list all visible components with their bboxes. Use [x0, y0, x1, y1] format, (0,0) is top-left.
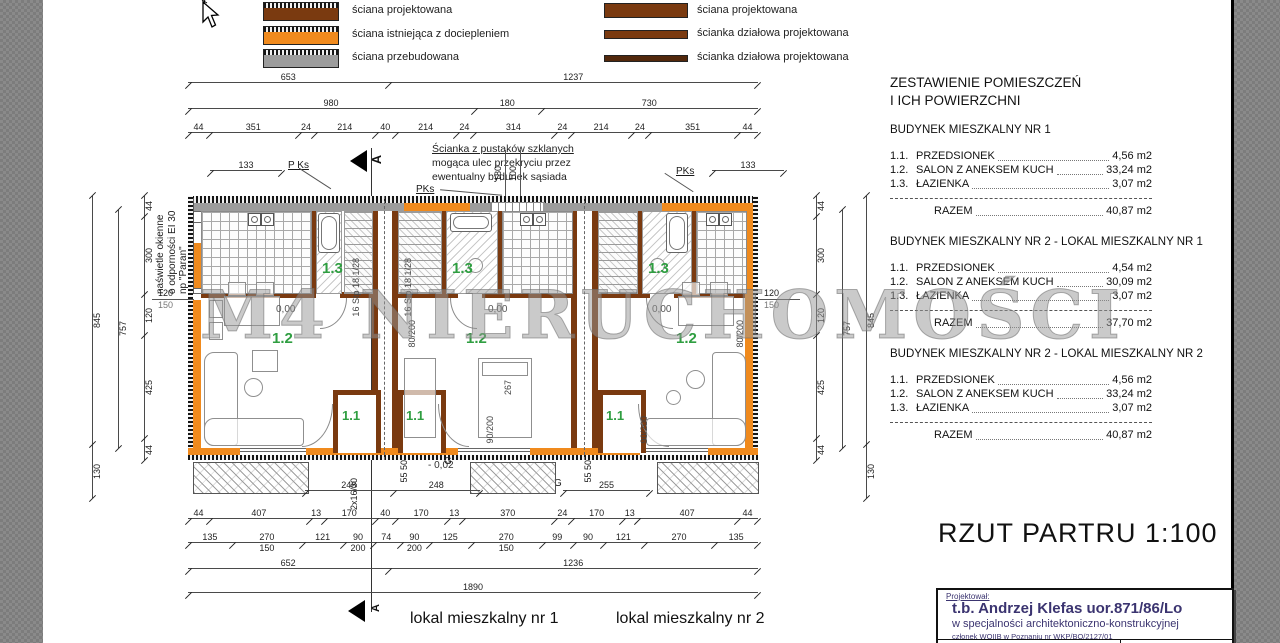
- title-block: Projektował: t.b. Andrzej Klefas uor.871…: [936, 588, 1234, 643]
- dim-chain-left-mid: 757: [118, 210, 131, 448]
- pks-label-left: P Ks: [288, 160, 309, 172]
- section-marker-top-icon: [350, 150, 367, 172]
- summary-total-row: RAZEM 40,87 m2: [890, 428, 1152, 442]
- dim-150-left: 150: [158, 301, 173, 311]
- naswietle-line-2: o odporności EI 30: [167, 198, 179, 294]
- summary-row: 1.1. PRZEDSIONEK 4,56 m2: [890, 373, 1152, 387]
- window-left-top: [193, 211, 201, 245]
- legend-swatch-partition-projected: [604, 30, 688, 39]
- dim-180: 180: [494, 166, 504, 181]
- dim-chain-left-outer: 845130: [92, 196, 105, 498]
- door-label-90-1: 90/200: [486, 416, 496, 444]
- naswietle-note: naświetle okienne o odporności EI 30 np …: [155, 198, 190, 294]
- summary-row: 1.3. ŁAZIENKA 3,07 m2: [890, 401, 1152, 415]
- legend-label: ściana istniejąca z dociepleniem: [352, 28, 509, 40]
- dim-100: 100: [509, 166, 519, 181]
- kitchen-sink-u3b: [719, 213, 732, 226]
- gas-marker-1: G: [444, 456, 452, 468]
- room-label-u1-11: 1.1: [342, 408, 360, 423]
- door-label-90-2: 90/200: [640, 416, 650, 444]
- titleblock-cell-divider: [938, 639, 1232, 640]
- dim-chain-bottom-1: 44407131704017013370241701340744: [188, 506, 758, 519]
- bathtub-u3: [666, 213, 688, 253]
- kitchen-sink-u1b: [261, 213, 274, 226]
- wall-top-orange-1: [404, 203, 470, 211]
- pks-label-mid: PKs: [416, 184, 434, 196]
- leader-dots: [1057, 174, 1104, 175]
- terrace-unit3: [657, 462, 759, 494]
- dim-120-left: 120: [158, 289, 173, 299]
- dim-chain-top-1: 6531237: [188, 70, 758, 83]
- room-label-u1-13: 1.3: [322, 260, 343, 277]
- summary-separator: [890, 198, 1152, 199]
- wall-bottom-hatch: [188, 455, 758, 460]
- dim-chain-left-inner: 4430012042544: [144, 196, 157, 460]
- summary-title: ZESTAWIENIE POMIESZCZEŃ I ICH POWIERZCHN…: [890, 74, 1081, 109]
- ext-line-100: [520, 150, 521, 196]
- pks-label-right: PKs: [676, 166, 694, 178]
- bathtub-u2: [450, 213, 492, 232]
- room-label-u2-13: 1.3: [452, 260, 473, 277]
- drawing-title: RZUT PARTRU 1:100: [938, 518, 1218, 549]
- dim-chain-bottom-4: 1890: [188, 580, 758, 593]
- kitchen-sink-u1: [248, 213, 261, 226]
- summary-row: 1.1. PRZEDSIONEK 4,54 m2: [890, 261, 1152, 275]
- legend-swatch-wall-rebuilt: [263, 49, 339, 68]
- dim-133-right: 133: [712, 158, 784, 171]
- terrace-unit2: [470, 462, 556, 494]
- summary-heading: BUDYNEK MIESZKALNY NR 2 - LOKAL MIESZKAL…: [890, 236, 1152, 248]
- section-letter-bottom: A: [370, 604, 382, 612]
- kitchen-sink-u3: [706, 213, 719, 226]
- kitchen-sink-u2: [520, 213, 533, 226]
- section-letter-top: A: [369, 155, 384, 164]
- legend-label: ścianka działowa projektowana: [697, 51, 849, 63]
- legend-swatch-wall-existing-insulated: [263, 26, 339, 45]
- dim-chain-bottom-3: 6521236: [188, 556, 758, 569]
- side-table-u3b: [666, 390, 681, 405]
- mouse-cursor-icon: [199, 0, 221, 30]
- wall-top-gray-1: [188, 203, 404, 211]
- leader-dots: [998, 384, 1109, 385]
- screenshot-canvas: ściana projektowana ściana istniejąca z …: [0, 0, 1280, 643]
- wall-top-gray-2: [470, 203, 490, 211]
- summary-total-row: RAZEM 40,87 m2: [890, 204, 1152, 218]
- dim-chain-mid-b: 255: [563, 478, 650, 491]
- summary-title-line1: ZESTAWIENIE POMIESZCZEŃ: [890, 74, 1081, 92]
- summary-section-3: BUDYNEK MIESZKALNY NR 2 - LOKAL MIESZKAL…: [890, 348, 1152, 442]
- note-line-1: Ścianka z pustaków szklanych: [432, 142, 574, 156]
- legend-swatch-wall-projected: [263, 2, 339, 21]
- leader-dots: [972, 188, 1109, 189]
- dim-267: 267: [504, 380, 514, 395]
- pks-leader-left: [299, 168, 331, 190]
- terrace-unit1: [193, 462, 309, 494]
- wall-top-gray-3: [543, 203, 662, 211]
- ext-line-180: [505, 150, 506, 196]
- side-table-u3: [686, 370, 705, 389]
- side-table-u1: [244, 378, 263, 397]
- leader-dots: [998, 160, 1109, 161]
- pks-leader-mid: [440, 189, 502, 195]
- dim-133-left: 133: [210, 158, 282, 171]
- bed-u2-pillow: [482, 362, 528, 376]
- wall-top-orange-2: [662, 203, 758, 211]
- right-transparency-strip: [1234, 0, 1280, 643]
- door-arc-entry1: [302, 404, 333, 447]
- leader-dots: [998, 272, 1109, 273]
- dim-chain-top-3: 44351242144021424314242142435144: [188, 120, 758, 133]
- section-marker-bottom-icon: [348, 600, 365, 622]
- leader-dots: [976, 439, 1104, 440]
- leader-dots: [1057, 398, 1104, 399]
- summary-heading: BUDYNEK MIESZKALNY NR 1: [890, 124, 1152, 136]
- room-label-u3-11: 1.1: [606, 408, 624, 423]
- summary-section-1: BUDYNEK MIESZKALNY NR 1 1.1. PRZEDSIONEK…: [890, 124, 1152, 218]
- footer-lokal-1: lokal mieszkalny nr 1: [410, 610, 559, 628]
- room-label-u3-13: 1.3: [648, 260, 669, 277]
- legend-swatch-partition-projected-2: [604, 55, 688, 62]
- summary-row: 1.1. PRZEDSIONEK 4,56 m2: [890, 149, 1152, 163]
- naswietle-line-3: np "Paran": [178, 198, 190, 294]
- leader-dots: [976, 215, 1104, 216]
- room-label-u2-11: 1.1: [406, 408, 424, 423]
- legend-label: ściana przebudowana: [352, 51, 459, 63]
- left-transparency-strip: [0, 0, 43, 643]
- naswietle-bracket: [193, 198, 194, 294]
- summary-row: 1.3. ŁAZIENKA 3,07 m2: [890, 177, 1152, 191]
- watermark-text: M4 NIERUCHOMOŚCI: [200, 276, 1126, 354]
- titleblock-vertical-divider: [1120, 639, 1121, 643]
- titleblock-designer-name: t.b. Andrzej Klefas uor.871/86/Lo: [952, 600, 1182, 617]
- sofa-u3-horizontal: [646, 418, 746, 446]
- summary-row: 1.2. SALON Z ANEKSEM KUCH 33,24 m2: [890, 163, 1152, 177]
- dim-chain-bottom-2: 1352701501219020074902001252701509990121…: [188, 530, 758, 543]
- sofa-u1-horizontal: [204, 418, 304, 446]
- summary-row: 1.2. SALON Z ANEKSEM KUCH 33,24 m2: [890, 387, 1152, 401]
- kitchen-sink-u2b: [533, 213, 546, 226]
- dim-chain-top-2: 980180730: [188, 96, 758, 109]
- wardrobe-u2: [404, 358, 436, 438]
- legend-label: ściana projektowana: [352, 4, 452, 16]
- footer-lokal-2: lokal mieszkalny nr 2: [616, 610, 765, 628]
- legend-swatch-wall-projected-2: [604, 3, 688, 18]
- summary-separator: [890, 422, 1152, 423]
- bathtub-u1: [318, 213, 340, 253]
- summary-title-line2: I ICH POWIERZCHNI: [890, 92, 1081, 110]
- wall-top-hatch: [188, 196, 758, 203]
- legend-label: ścianka działowa projektowana: [697, 27, 849, 39]
- legend-label: ściana projektowana: [697, 4, 797, 16]
- dim-chain-mid-a: 248248: [305, 478, 480, 491]
- titleblock-specialty: w specjalności architektoniczno-konstruk…: [952, 618, 1179, 630]
- leader-dots: [972, 412, 1109, 413]
